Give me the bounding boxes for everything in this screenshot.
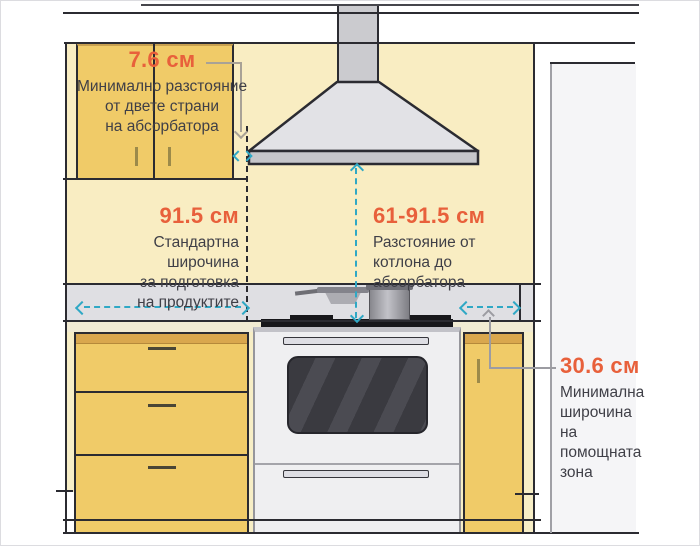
right-cabinet-handle bbox=[477, 359, 480, 383]
arrowhead-down-icon bbox=[349, 309, 363, 323]
measurement-desc-line: широчина bbox=[560, 403, 670, 423]
drawer-handle-3 bbox=[148, 466, 176, 469]
label-hood-side-clearance: 7.6 см Минимално разстояние от двете стр… bbox=[63, 47, 261, 137]
cabinet-top-band bbox=[465, 334, 522, 344]
measurement-value: 61-91.5 см bbox=[373, 203, 543, 229]
measurement-desc-line: на продуктите bbox=[79, 293, 239, 313]
kitchen-dimensions-diagram: 7.6 см Минимално разстояние от двете стр… bbox=[0, 0, 700, 546]
measurement-value: 30.6 см bbox=[560, 353, 670, 379]
hood-side-clearance-arrow bbox=[234, 151, 251, 160]
right-base-cabinet bbox=[463, 332, 524, 534]
left-wall-tick bbox=[56, 490, 73, 492]
left-base-cabinet bbox=[74, 332, 249, 534]
upper-cabinet-bottom-line bbox=[63, 178, 248, 180]
measurement-desc-line: абсорбатора bbox=[373, 273, 543, 293]
counter-front-line bbox=[63, 320, 541, 322]
arrow-dash bbox=[355, 168, 357, 318]
label-aux-zone: 30.6 см Минимална широчина на помощната … bbox=[560, 353, 670, 483]
arrowhead-up-icon bbox=[349, 163, 363, 177]
label-prep-width: 91.5 см Стандартна широчина за подготовк… bbox=[79, 203, 239, 313]
ceiling-line bbox=[63, 12, 639, 14]
measurement-desc-line: Разстояние от bbox=[373, 233, 543, 253]
measurement-desc-line: помощната bbox=[560, 443, 670, 463]
hood-height-arrow bbox=[350, 165, 362, 321]
measurement-desc-line: зона bbox=[560, 463, 670, 483]
aux-leader-h bbox=[489, 367, 556, 369]
label-hood-height: 61-91.5 см Разстояние от котлона до абсо… bbox=[373, 203, 543, 293]
range-hood bbox=[247, 79, 480, 167]
measurement-desc-line: Минимална bbox=[560, 383, 670, 403]
drawer-handle-1 bbox=[148, 347, 176, 350]
oven-door-bottom-line bbox=[255, 463, 459, 465]
cabinet-top-band bbox=[76, 334, 247, 344]
upper-cabinet-handle-right bbox=[168, 147, 171, 166]
arrowhead-right-icon bbox=[241, 150, 252, 161]
measurement-desc-line: за подготовка bbox=[79, 273, 239, 293]
pot-body bbox=[369, 290, 410, 320]
measurement-value: 7.6 см bbox=[63, 47, 261, 73]
measurement-desc-line: Минимално разстояние bbox=[63, 77, 261, 97]
measurement-desc-line: Стандартна широчина bbox=[79, 233, 239, 273]
ceiling-line-upper bbox=[141, 4, 639, 6]
arrowhead-right-icon bbox=[507, 301, 521, 315]
aux-wall-left-line bbox=[550, 64, 552, 533]
arrowhead-left-icon bbox=[459, 301, 473, 315]
measurement-desc-line: на bbox=[560, 423, 670, 443]
floor-line bbox=[63, 532, 639, 534]
drawer-divider-2 bbox=[74, 454, 249, 456]
measurement-desc-line: котлона до bbox=[373, 253, 543, 273]
aux-wall-top-line bbox=[550, 62, 635, 64]
measurement-value: 91.5 см bbox=[79, 203, 239, 229]
drawer-handle-2 bbox=[148, 404, 176, 407]
drawer-divider-1 bbox=[74, 391, 249, 393]
oven-window bbox=[287, 356, 428, 434]
measurement-desc-line: от двете страни bbox=[63, 97, 261, 117]
aux-leader-v bbox=[489, 317, 491, 369]
toe-kick-line bbox=[63, 519, 541, 521]
right-wall-tick bbox=[515, 493, 539, 495]
wall-top-line bbox=[64, 42, 635, 44]
measurement-desc-line: на абсорбатора bbox=[63, 117, 261, 137]
upper-cabinet-handle-left bbox=[135, 147, 138, 166]
oven-door-handle bbox=[283, 337, 429, 345]
storage-drawer-handle bbox=[283, 470, 429, 478]
